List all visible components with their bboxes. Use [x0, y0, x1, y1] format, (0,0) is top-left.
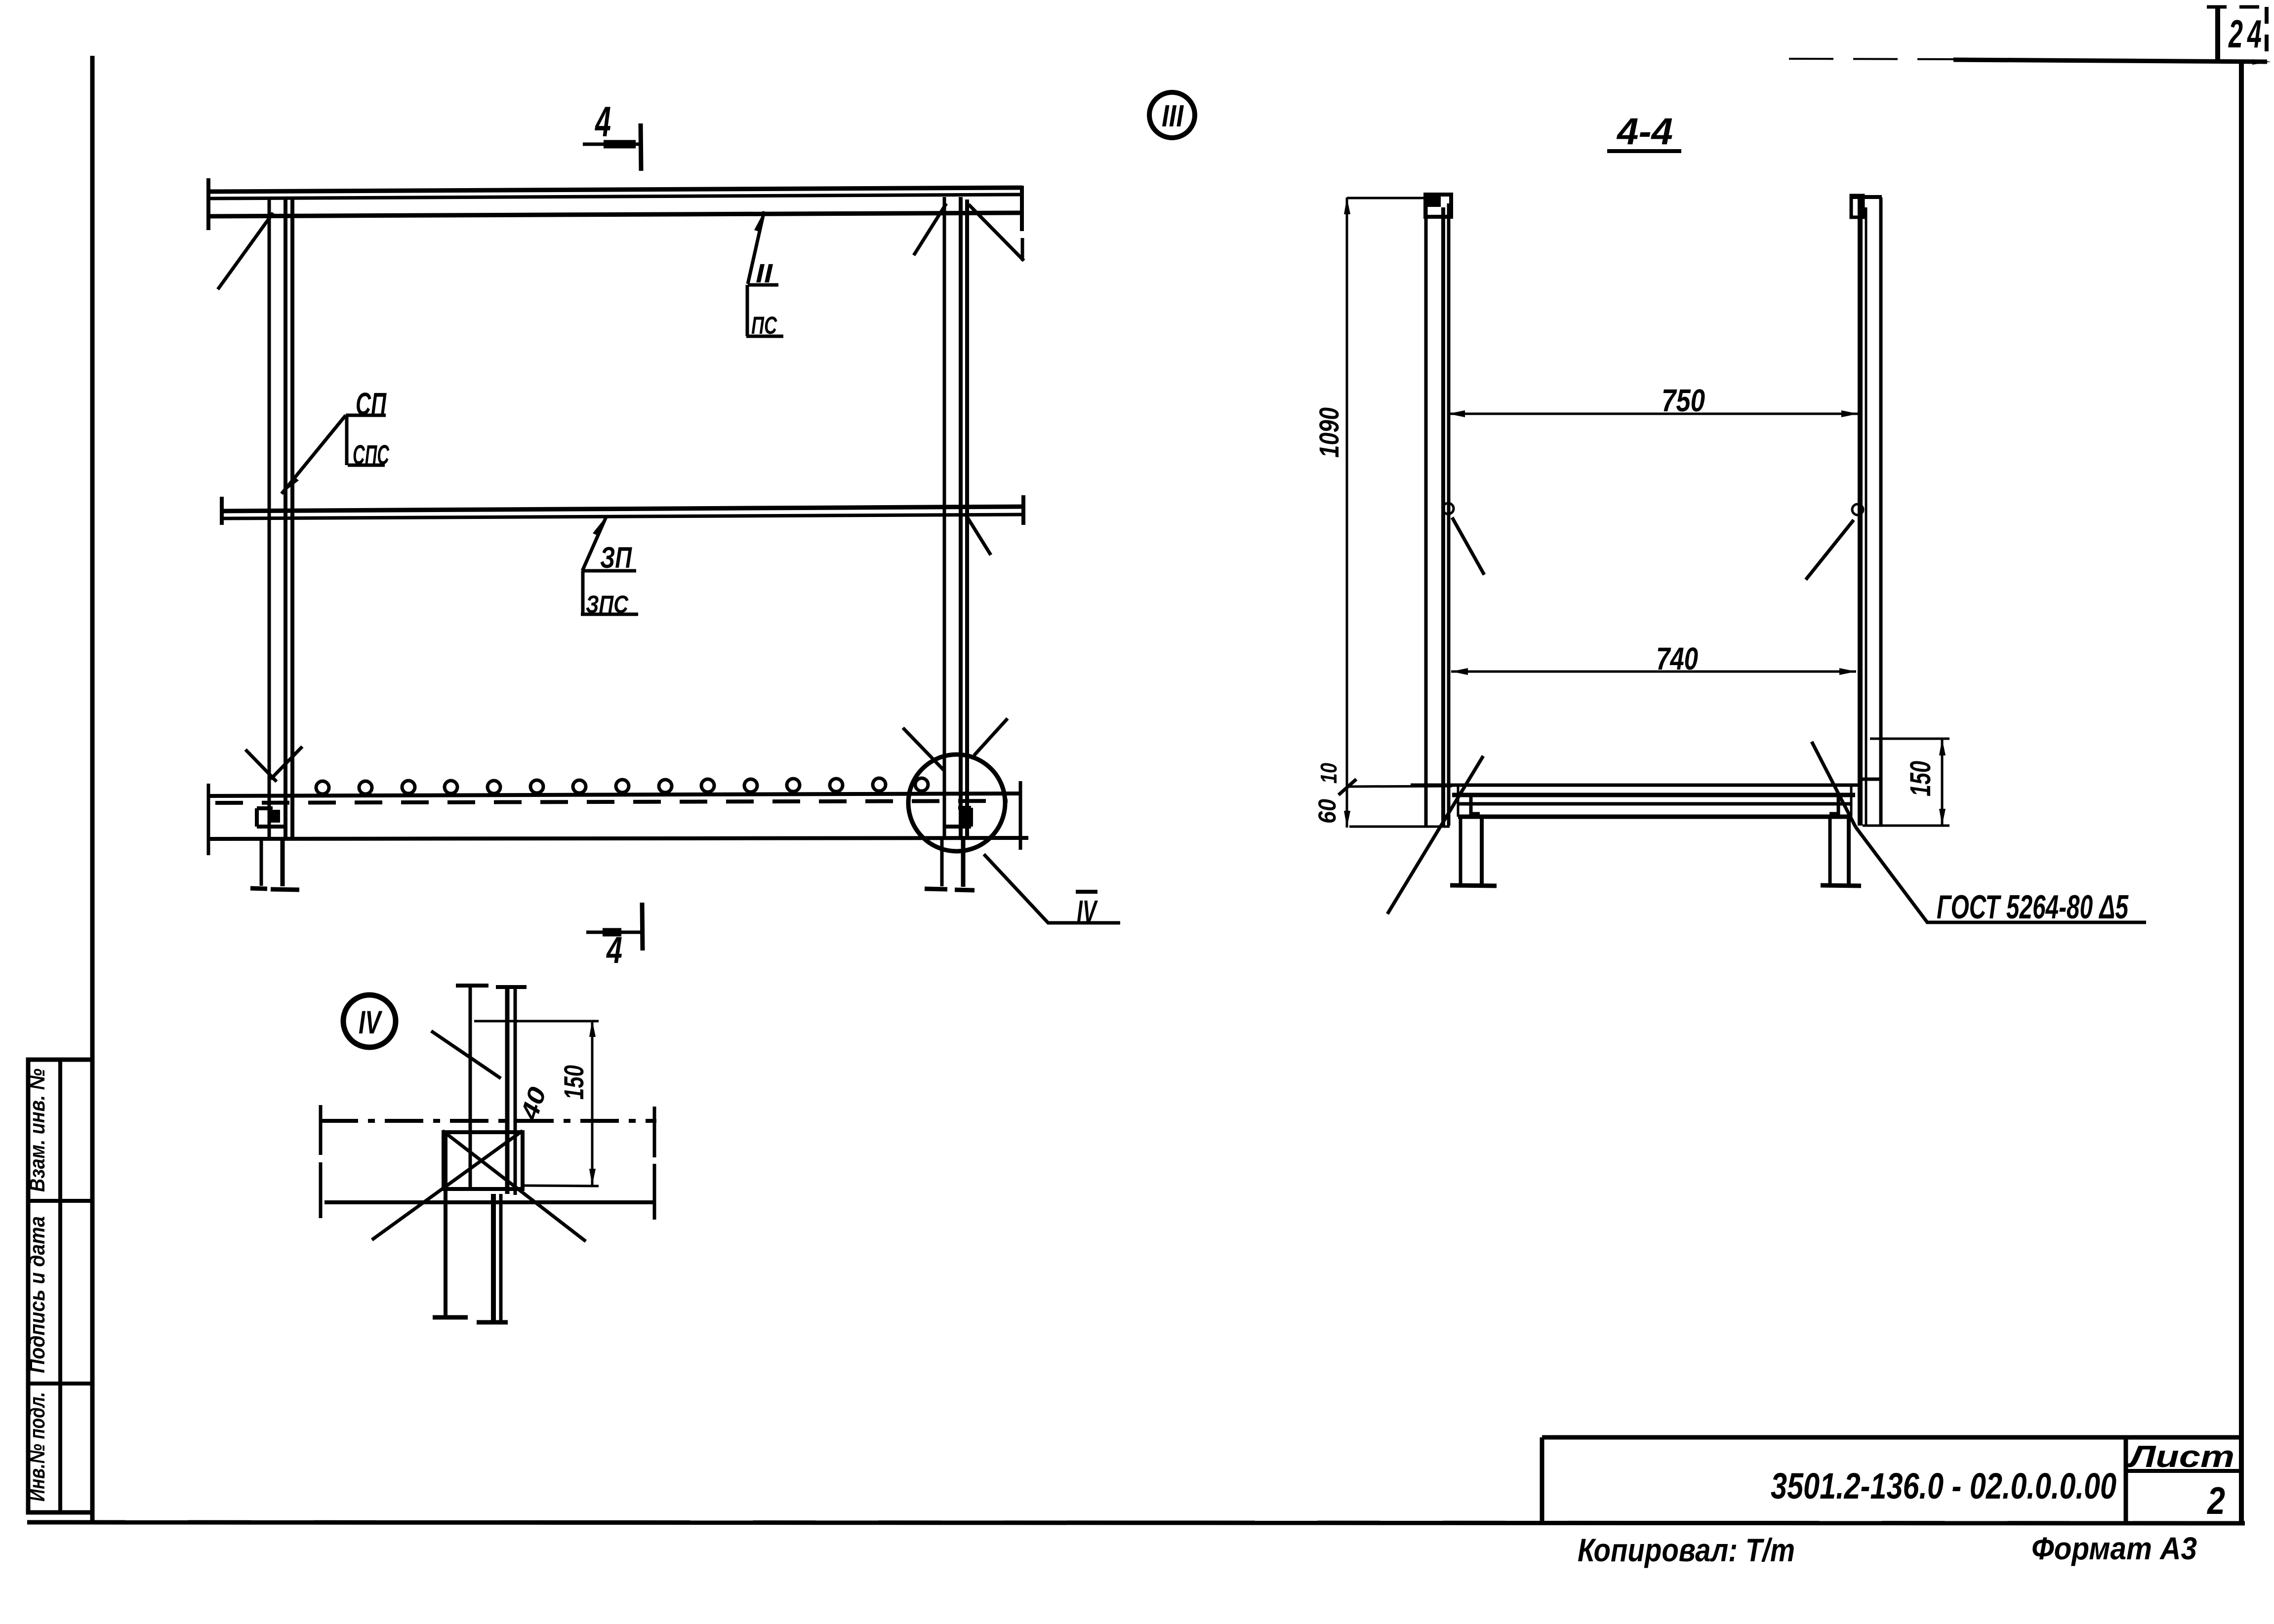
svg-text:Подпись и дата: Подпись и дата [25, 1216, 49, 1373]
svg-text:60: 60 [1313, 799, 1341, 824]
svg-text:Формат А3: Формат А3 [2031, 1531, 2197, 1566]
svg-text:Взам. инв. №: Взам. инв. № [25, 1069, 49, 1192]
svg-text:III: III [1162, 99, 1184, 133]
svg-text:IV: IV [1077, 894, 1098, 929]
svg-text:ГОСТ 5264-80 Δ5: ГОСТ 5264-80 Δ5 [1937, 888, 2129, 926]
svg-text:ЗП: ЗП [600, 541, 632, 574]
svg-text:Лист: Лист [2127, 1440, 2234, 1474]
svg-text:II: II [756, 259, 773, 288]
svg-text:740: 740 [1656, 641, 1698, 676]
svg-text:750: 750 [1662, 383, 1705, 418]
svg-text:4: 4 [606, 929, 622, 971]
svg-text:ЗПС: ЗПС [586, 591, 629, 618]
svg-text:24: 24 [2228, 12, 2266, 56]
svg-text:СПС: СПС [353, 439, 390, 470]
svg-text:150: 150 [1905, 761, 1937, 796]
svg-text:4-4: 4-4 [1616, 111, 1673, 153]
svg-text:ПС: ПС [751, 312, 777, 339]
svg-text:3501.2-136.0 - 02.0.0.0.00: 3501.2-136.0 - 02.0.0.0.00 [1771, 1466, 2116, 1506]
svg-text:4: 4 [595, 98, 611, 146]
svg-text:2: 2 [2206, 1479, 2225, 1522]
svg-text:IV: IV [359, 1004, 383, 1040]
svg-text:150: 150 [558, 1065, 589, 1100]
svg-text:1090: 1090 [1313, 407, 1344, 458]
svg-text:СП: СП [356, 386, 387, 422]
svg-text:10: 10 [1316, 763, 1341, 784]
svg-text:Копировал: Т/т: Копировал: Т/т [1578, 1532, 1795, 1568]
svg-text:Инв.№ подл.: Инв.№ подл. [25, 1392, 49, 1502]
